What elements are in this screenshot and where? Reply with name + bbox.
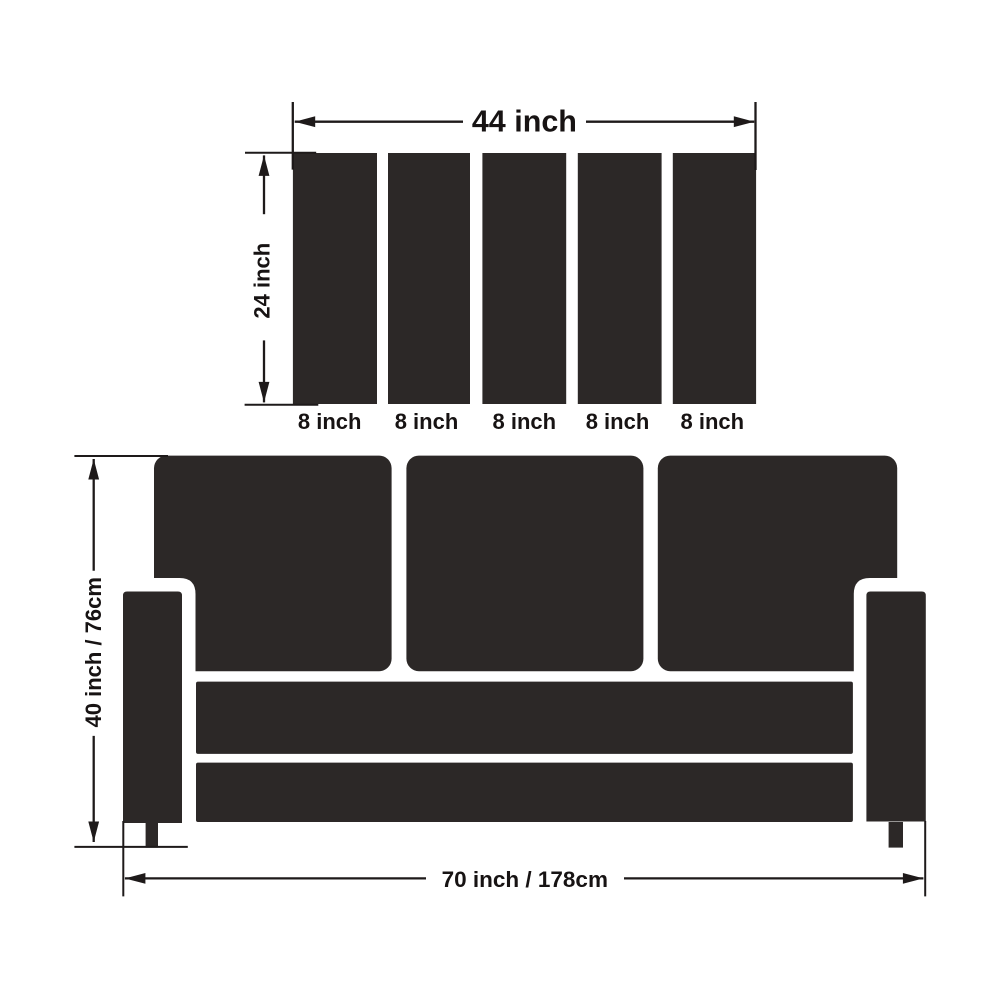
svg-text:8 inch: 8 inch <box>298 409 362 434</box>
svg-text:8 inch: 8 inch <box>395 409 459 434</box>
svg-text:8 inch: 8 inch <box>586 409 650 434</box>
svg-text:44 inch: 44 inch <box>472 105 577 139</box>
svg-text:24 inch: 24 inch <box>250 243 275 319</box>
svg-text:40 inch / 76cm: 40 inch / 76cm <box>81 577 106 727</box>
svg-text:8 inch: 8 inch <box>493 409 557 434</box>
svg-text:8 inch: 8 inch <box>681 409 745 434</box>
svg-text:70 inch / 178cm: 70 inch / 178cm <box>442 867 608 892</box>
